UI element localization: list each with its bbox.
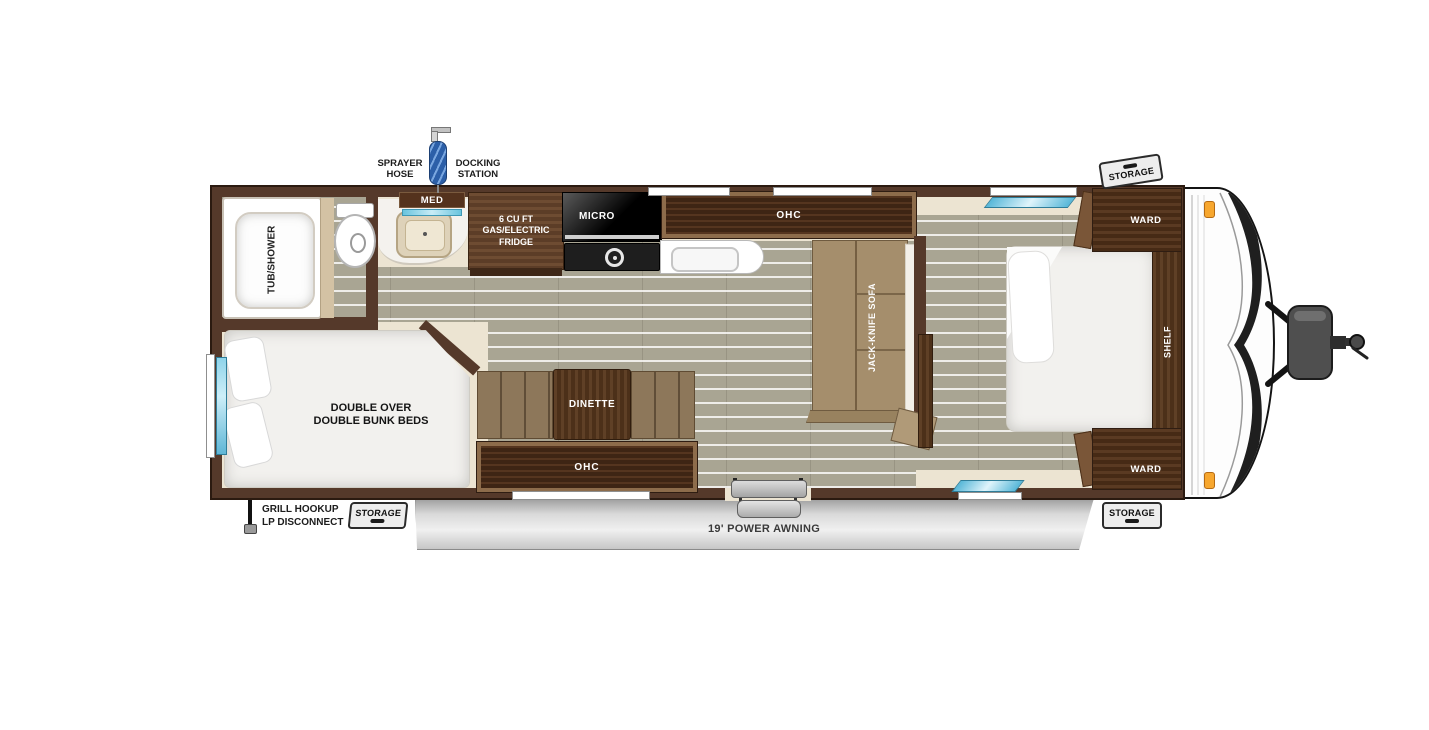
- sofa-label: JACK-KNIFE SOFA: [865, 263, 879, 391]
- microwave-trim: [565, 235, 659, 239]
- bathroom-cabinet-strip: [320, 198, 334, 318]
- sofa-back-divider: [855, 241, 857, 411]
- bedroom-skylight-rear: [951, 480, 1024, 492]
- window-top: [990, 187, 1077, 196]
- shelf-label: SHELF: [1161, 299, 1174, 385]
- wardrobe-rear-label: WARD: [1111, 462, 1181, 476]
- rv-floor-plan: 19' POWER AWNING TUB/SHOWER: [0, 0, 1429, 730]
- living-ohc-label: OHC: [574, 462, 599, 473]
- storage-handle-icon: [1125, 519, 1139, 523]
- trailer-tongue-hitch: [1265, 290, 1429, 400]
- storage-handle-icon: [370, 519, 384, 523]
- bathroom-partition-wall: [212, 317, 378, 332]
- wardrobe-front-label: WARD: [1111, 213, 1181, 227]
- wardrobe-front: WARD: [1092, 188, 1182, 252]
- bedroom-skylight-front: [984, 197, 1077, 208]
- fridge-base: [470, 268, 562, 276]
- window-left-wall: [206, 354, 215, 458]
- clearance-light-icon: [1204, 201, 1215, 218]
- window-left-glass: [216, 357, 227, 455]
- entry-step-upper: [731, 480, 807, 498]
- window-top: [648, 187, 730, 196]
- burner-icon: [605, 248, 624, 267]
- toilet-drain-icon: [350, 233, 366, 253]
- micro-label: MICRO: [579, 211, 615, 222]
- bathroom-sink-icon: [396, 211, 452, 258]
- awning-label: 19' POWER AWNING: [708, 523, 820, 535]
- grill-hookup-connector-icon: [244, 524, 257, 534]
- tub-shower-label: TUB/SHOWER: [264, 215, 280, 305]
- front-cap-graphics: [1182, 189, 1275, 499]
- toilet-bowl-icon: [334, 214, 376, 268]
- medicine-cabinet: MED: [399, 192, 465, 208]
- bed-foot-dresser: [918, 334, 933, 448]
- storage-bottom-left-label: STORAGE: [355, 508, 402, 518]
- dinette-label: DINETTE: [569, 399, 615, 410]
- dinette-bench-left: [477, 371, 553, 439]
- bed-pillow-icon: [1007, 250, 1055, 364]
- window-bottom: [512, 491, 650, 500]
- jack-knife-sofa: JACK-KNIFE SOFA: [812, 240, 908, 412]
- kitchen-ohc-label: OHC: [776, 210, 801, 221]
- med-label: MED: [421, 195, 444, 206]
- faucet-icon: [423, 232, 427, 236]
- kitchen-sink-icon: [671, 247, 739, 272]
- wardrobe-rear: WARD: [1092, 428, 1182, 490]
- microwave: MICRO: [562, 192, 662, 242]
- bed-headboard-shelf: SHELF: [1152, 242, 1182, 442]
- window-top: [773, 187, 872, 196]
- docking-station-label: DOCKING STATION: [451, 155, 505, 183]
- front-cap: [1180, 187, 1275, 499]
- storage-compartment-bottom-left: STORAGE: [348, 502, 409, 529]
- grill-hookup-label: GRILL HOOKUP LP DISCONNECT: [262, 504, 344, 529]
- towel-bar-icon: [402, 209, 462, 216]
- sprayer-cord-icon: [437, 185, 439, 193]
- kitchen-overhead-cabinet: OHC: [662, 192, 916, 238]
- sprayer-hose-label: SPRAYER HOSE: [374, 155, 426, 183]
- queen-bed-mattress: [1006, 246, 1156, 432]
- tub-shower: TUB/SHOWER: [222, 197, 322, 319]
- sprayer-hose-coil-icon: [429, 141, 447, 185]
- storage-bottom-right-label: STORAGE: [1109, 508, 1155, 518]
- cooktop: [564, 243, 660, 271]
- entry-step-lower: [737, 500, 801, 518]
- storage-top-label: STORAGE: [1108, 165, 1155, 182]
- fridge-label: 6 CU FT GAS/ELECTRIC FRIDGE: [482, 214, 549, 248]
- bunk-label: DOUBLE OVER DOUBLE BUNK BEDS: [291, 395, 451, 435]
- living-overhead-cabinet: OHC: [477, 442, 697, 492]
- burner-cross-icon: [613, 256, 617, 260]
- kitchen-counter: [660, 240, 764, 274]
- grill-hookup-line-icon: [248, 500, 252, 524]
- refrigerator: 6 CU FT GAS/ELECTRIC FRIDGE: [468, 192, 564, 270]
- dinette-table: DINETTE: [553, 369, 631, 440]
- clearance-light-icon: [1204, 472, 1215, 489]
- window-bottom: [958, 492, 1022, 500]
- dinette-bench-right: [631, 371, 695, 439]
- storage-compartment-bottom-right: STORAGE: [1102, 502, 1162, 529]
